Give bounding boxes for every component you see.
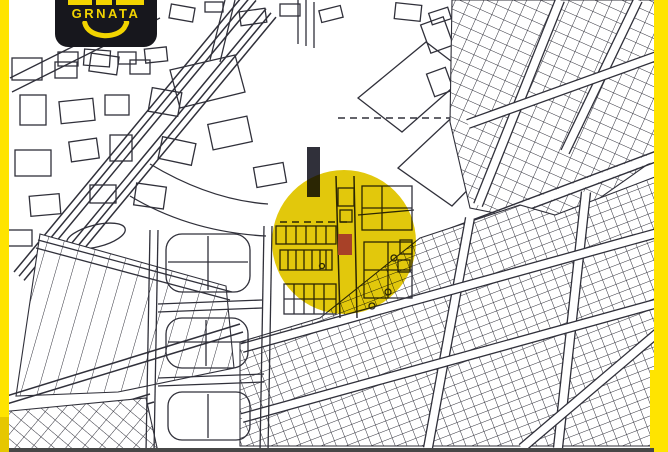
left-frame-stripe	[0, 0, 9, 452]
logo-arabic-text-cropped	[55, 0, 157, 5]
logo-glyph	[116, 0, 144, 5]
logo-brand-text: GRNATA	[72, 6, 141, 21]
right-frame-stripe-wide	[650, 370, 668, 452]
smile-icon	[78, 21, 134, 45]
logo-glyph	[68, 0, 92, 5]
map-canvas	[0, 0, 668, 452]
flyer-canvas: GRNATA	[0, 0, 668, 452]
grnata-logo: GRNATA	[55, 0, 157, 47]
property-marker	[338, 234, 352, 255]
logo-glyph	[96, 0, 112, 5]
bottom-frame-bar	[9, 448, 654, 452]
left-frame-stripe-shade	[0, 417, 9, 452]
